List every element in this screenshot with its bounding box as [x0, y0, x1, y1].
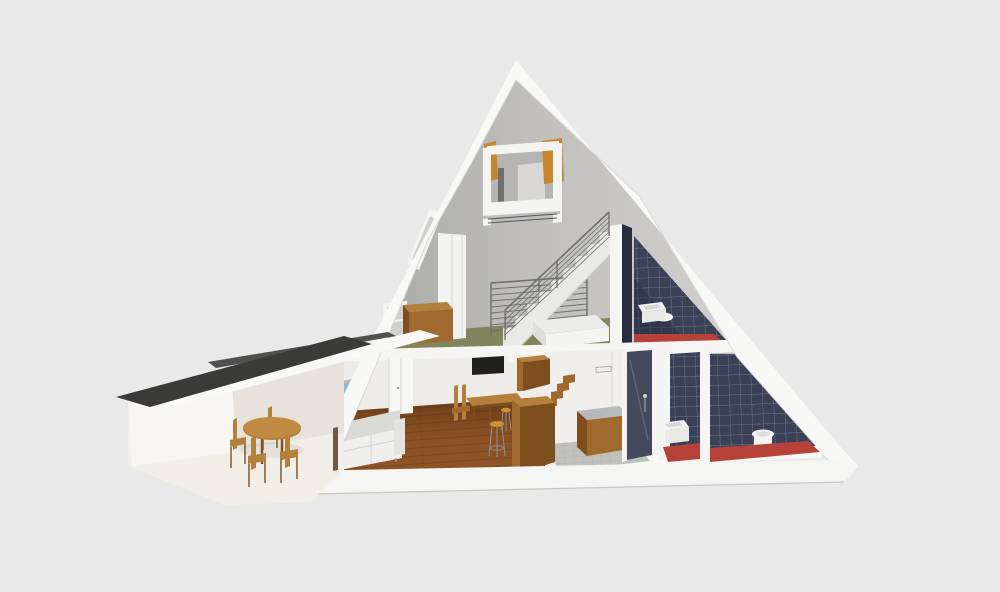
- shower-frame-left: [622, 351, 627, 462]
- annex-doorway: [333, 427, 338, 471]
- upper-partition-dark-face: [622, 224, 632, 348]
- double-door: [389, 357, 413, 415]
- wc-partition-right: [700, 348, 710, 461]
- shower-room: [622, 350, 658, 462]
- sleeping-loft: [483, 138, 564, 226]
- aframe-house-cutaway: [0, 0, 1000, 592]
- wall-speaker: [508, 356, 514, 363]
- door-handle: [397, 387, 399, 389]
- sofa-armrest: [394, 418, 405, 456]
- render-canvas: [0, 0, 1000, 592]
- kitchen-island: [512, 396, 555, 473]
- shower-head: [643, 394, 647, 398]
- shower-dark-wall: [626, 350, 652, 460]
- shower-frame-right: [652, 350, 658, 455]
- wc-room: [658, 348, 710, 462]
- upper-partition: [610, 224, 622, 350]
- loft-ladder: [498, 168, 504, 206]
- wall-tv: [472, 356, 504, 375]
